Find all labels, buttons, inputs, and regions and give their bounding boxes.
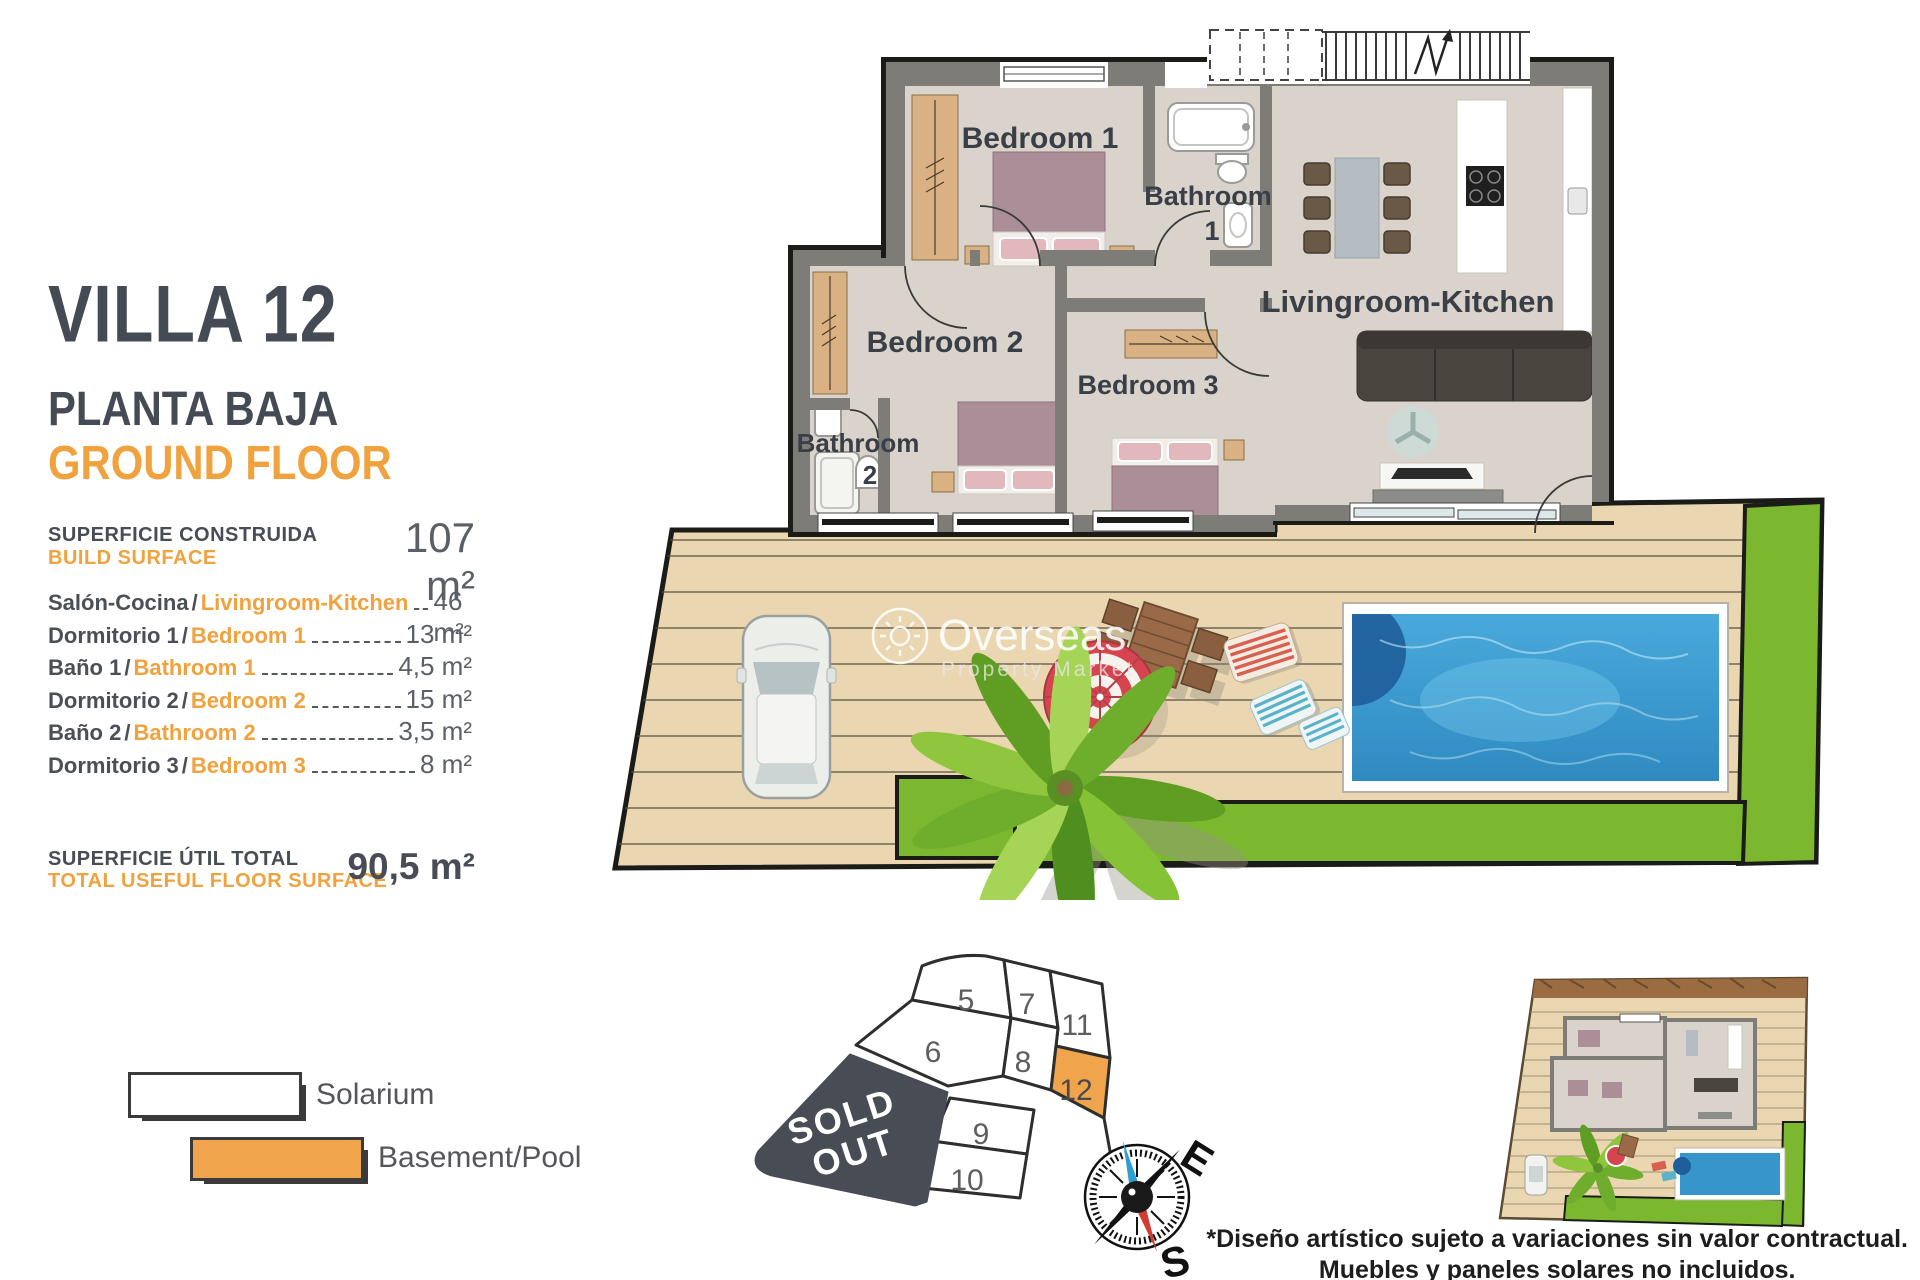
subtitle-en: GROUND FLOOR (48, 436, 392, 491)
plot-number-10: 10 (950, 1164, 983, 1197)
room-label-es: Baño 1 (48, 655, 121, 681)
room-area-value: 4,5 m² (398, 651, 472, 682)
stairs (1207, 26, 1530, 84)
mini-site-plan (1480, 950, 1840, 1240)
subtitle-es: PLANTA BAJA (48, 382, 338, 437)
legend-solarium-swatch (128, 1072, 302, 1118)
room-area-table: Salón-Cocina/Livingroom-Kitchen46 m² Dor… (48, 586, 472, 781)
room-label-en: Bedroom 1 (191, 623, 306, 649)
dashed-leader (312, 641, 401, 643)
room-area-value: 3,5 m² (398, 716, 472, 747)
plot-number-6: 6 (925, 1036, 942, 1069)
separator: / (121, 655, 133, 681)
plot-number-12: 12 (1059, 1074, 1092, 1107)
table-row: Baño 2/Bathroom 23,5 m² (48, 716, 472, 749)
room-label-en: Bedroom 3 (191, 753, 306, 779)
separator: / (189, 590, 201, 616)
bathroom2-label: Bathroom (797, 428, 920, 458)
room-label-en: Bathroom 2 (133, 720, 255, 746)
page-title: VILLA 12 (48, 268, 338, 360)
watermark-line2: Property Market (941, 658, 1135, 681)
legend-basement-swatch (190, 1137, 364, 1181)
room-label-en: Livingroom-Kitchen (201, 590, 409, 616)
bathroom1-number: 1 (1204, 216, 1219, 246)
plot-number-8: 8 (1015, 1046, 1032, 1079)
build-surface-label-en: BUILD SURFACE (48, 547, 317, 570)
plot-number-7: 7 (1019, 988, 1036, 1021)
room-label-en: Bathroom 1 (133, 655, 255, 681)
plot-number-11: 11 (1061, 1009, 1092, 1042)
legend-basement-label: Basement/Pool (378, 1141, 581, 1175)
dashed-leader (312, 771, 415, 773)
dining-table (1335, 158, 1379, 258)
table-row: Dormitorio 1/Bedroom 113 m² (48, 619, 472, 652)
room-label-es: Baño 2 (48, 720, 121, 746)
build-surface-header: SUPERFICIE CONSTRUIDA BUILD SURFACE (48, 524, 317, 570)
table-row: Baño 1/Bathroom 14,5 m² (48, 651, 472, 684)
bathroom2-number: 2 (863, 460, 877, 490)
dashed-leader (312, 706, 401, 708)
room-label-es: Dormitorio 1 (48, 623, 179, 649)
separator: / (179, 623, 191, 649)
room-label-en: Bedroom 2 (191, 688, 306, 714)
room-area-value: 15 m² (406, 684, 472, 715)
table-row: Dormitorio 3/Bedroom 38 m² (48, 749, 472, 782)
swimming-pool (1298, 598, 1728, 792)
room-area-value: 13 m² (406, 619, 472, 650)
footer-line2: Muebles y paneles solares no incluidos. (1206, 1255, 1908, 1280)
plot-map: SOLD OUT 5 6 7 8 9 10 11 12 (610, 950, 1230, 1280)
floorplan-sheet: VILLA 12 PLANTA BAJA GROUND FLOOR SUPERF… (0, 0, 1920, 1280)
table-row: Dormitorio 2/Bedroom 215 m² (48, 684, 472, 717)
plot-number-5: 5 (958, 984, 975, 1017)
bedroom3-label: Bedroom 3 (1077, 370, 1218, 400)
build-surface-label-es: SUPERFICIE CONSTRUIDA (48, 524, 317, 547)
mini-house (1552, 1014, 1755, 1130)
legend-solarium-label: Solarium (316, 1078, 434, 1112)
room-label-es: Dormitorio 2 (48, 688, 179, 714)
separator: / (179, 688, 191, 714)
villa-building: Bedroom 1 Bathroom 1 Bedroom 2 Bedroom 3… (788, 26, 1614, 537)
plot-number-9: 9 (973, 1118, 990, 1151)
compass-icon (1085, 1139, 1189, 1253)
living-label: Livingroom-Kitchen (1262, 284, 1555, 319)
footer-line1: *Diseño artístico sujeto a variaciones s… (1206, 1224, 1908, 1255)
main-floorplan: Overseas Property Market (560, 0, 1840, 900)
bedroom2-label: Bedroom 2 (867, 326, 1024, 359)
bedroom1-label: Bedroom 1 (962, 122, 1119, 155)
dashed-leader (414, 608, 428, 610)
room-label-es: Dormitorio 3 (48, 753, 179, 779)
table-row: Salón-Cocina/Livingroom-Kitchen46 m² (48, 586, 472, 619)
watermark-line1: Overseas (938, 611, 1126, 660)
bathroom1-label: Bathroom (1144, 181, 1272, 211)
dashed-leader (262, 673, 394, 675)
footer-disclaimer: *Diseño artístico sujeto a variaciones s… (1206, 1224, 1908, 1280)
car (737, 616, 836, 798)
total-surface-value: 90,5 m² (330, 846, 475, 888)
separator: / (121, 720, 133, 746)
compass-south-label: S (1156, 1235, 1195, 1280)
separator: / (179, 753, 191, 779)
room-label-es: Salón-Cocina (48, 590, 189, 616)
room-area-value: 8 m² (420, 749, 472, 780)
dashed-leader (262, 738, 394, 740)
